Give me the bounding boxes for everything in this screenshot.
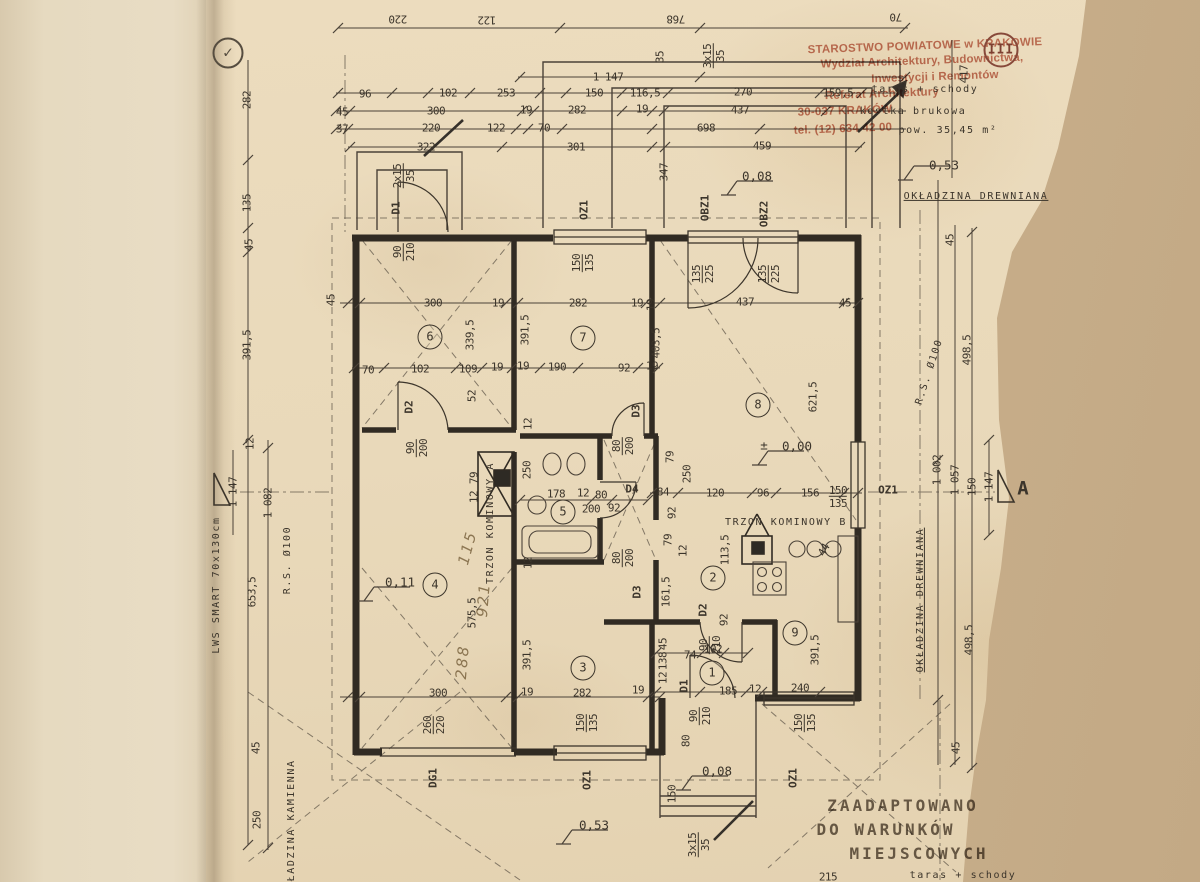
level-mark: 0,08: [702, 766, 732, 779]
dimension-label: 19: [636, 103, 648, 114]
opening-label: OBZ2: [758, 201, 769, 228]
dimension-label: 150135: [571, 254, 595, 272]
opening-label: D3: [631, 585, 642, 598]
dimension-label: 768: [667, 13, 685, 24]
dimension-label: 135225: [757, 265, 781, 283]
dimension-label: 79: [664, 451, 675, 463]
room-number: 8: [746, 393, 771, 418]
dimension-label: 150135: [829, 485, 847, 509]
dimension-label: 109: [459, 363, 477, 374]
dimension-label: 113,5: [719, 535, 730, 566]
dimension-label: 1 147: [593, 71, 624, 82]
dimension-label: 79: [662, 534, 673, 546]
dimension-label: 347: [658, 163, 669, 181]
opening-label: OZ1: [578, 200, 589, 220]
dimension-label: 200: [582, 503, 600, 514]
dimension-label: 116,5: [630, 87, 661, 98]
dimension-label: 391,5: [521, 640, 532, 671]
room-number: 5: [551, 500, 576, 525]
dimension-label: 150135: [575, 714, 599, 732]
dimension-label: 403,5: [650, 328, 661, 359]
opening-label: D1: [678, 679, 689, 692]
room-number: 3: [571, 656, 596, 681]
dimension-label: 52: [466, 390, 477, 402]
dimension-label: 417: [958, 65, 969, 83]
dimension-label: 250: [681, 465, 692, 483]
dimension-label: 19: [645, 299, 656, 311]
room-number: 1: [700, 661, 725, 686]
dimension-label: 120: [706, 487, 724, 498]
dimension-label: 282: [241, 91, 252, 109]
annotation-layer: STAROSTWO POWIATOWE w KRAKOWIEWydział Ar…: [0, 0, 1200, 882]
dimension-label: 1 082: [262, 488, 273, 519]
dimension-label: 92: [618, 362, 630, 373]
dimension-label: 79: [468, 472, 479, 484]
note-text: R.S. Ø100: [283, 526, 293, 595]
dimension-label: 12: [522, 557, 533, 569]
dimension-label: 45: [944, 234, 955, 246]
dimension-label: 12: [244, 438, 255, 450]
handwritten-note: 921: [475, 582, 493, 618]
photographed-floor-plan: STAROSTWO POWIATOWE w KRAKOWIEWydział Ar…: [0, 0, 1200, 882]
dimension-label: 391,5: [809, 635, 820, 666]
handwritten-note: 288: [454, 644, 472, 680]
dimension-label: 19: [520, 104, 532, 115]
level-mark: 0,53: [579, 820, 609, 833]
dimension-label: 96: [359, 88, 371, 99]
dimension-label: 12: [468, 491, 479, 503]
level-mark: 0,53: [929, 160, 959, 173]
dimension-label: 45: [336, 106, 348, 117]
dimension-label: 92: [666, 507, 677, 519]
dimension-label: 19: [646, 360, 658, 371]
note-text: taras + schody: [910, 871, 1017, 881]
dimension-label: 621,5: [807, 382, 818, 413]
dimension-label: 74: [684, 649, 696, 660]
dimension-label: 150135: [793, 714, 817, 732]
note-text: kostka brukowa: [860, 107, 967, 117]
dimension-label: 391,5: [519, 315, 530, 346]
opening-label: D1: [390, 201, 401, 214]
dimension-label: 19: [517, 360, 529, 371]
dimension-label: 19: [631, 297, 643, 308]
dimension-label: 92: [608, 502, 620, 513]
opening-label: D4: [625, 483, 638, 494]
dimension-label: 102: [704, 643, 722, 654]
checkmark-icon: ✓: [213, 38, 244, 69]
dimension-label: 437: [731, 104, 749, 115]
dimension-label: 498,5: [963, 625, 974, 656]
room-number: 6: [418, 325, 443, 350]
dimension-label: 80: [595, 489, 607, 500]
adaptation-stamp-line: DO WARUNKÓW: [817, 822, 956, 838]
level-mark: ±: [760, 440, 768, 453]
dimension-label: 138: [657, 652, 668, 670]
note-text: OKŁADZINA DREWNIANA: [904, 192, 1049, 202]
dimension-label: 3x1535: [702, 44, 726, 69]
dimension-label: 84: [657, 486, 669, 497]
dimension-label: 300: [424, 297, 442, 308]
dimension-label: 220: [422, 122, 440, 133]
dimension-label: 12: [657, 672, 668, 684]
opening-label: D2: [403, 400, 414, 413]
dimension-label: 220: [389, 13, 407, 24]
dimension-label: 322: [417, 141, 435, 152]
dimension-label: 70: [362, 364, 374, 375]
room-number: 4: [423, 573, 448, 598]
dimension-label: 45: [325, 294, 336, 306]
page-seal-icon: III: [984, 33, 1019, 68]
adaptation-stamp-line: ZAADAPTOWANO: [827, 798, 979, 814]
dimension-label: 437: [736, 296, 754, 307]
dimension-label: 391,5: [241, 330, 252, 361]
dimension-label: 45: [243, 239, 254, 251]
dimension-label: 156: [801, 487, 819, 498]
dimension-label: 19: [521, 686, 533, 697]
dimension-label: 1 147: [227, 477, 238, 508]
dimension-label: 12: [677, 545, 688, 557]
dimension-label: 37: [336, 123, 348, 134]
dimension-label: 282: [573, 687, 591, 698]
dimension-label: 80: [680, 735, 691, 747]
dimension-label: 282: [568, 104, 586, 115]
dimension-label: 159,5: [823, 87, 854, 98]
dimension-label: 80200: [611, 437, 635, 455]
dimension-label: 80200: [611, 549, 635, 567]
dimension-label: 12: [749, 683, 761, 694]
dimension-label: 150: [966, 478, 977, 496]
room-number: 9: [783, 621, 808, 646]
level-mark: 0,11: [385, 577, 415, 590]
dimension-label: 1 147: [983, 472, 994, 503]
dimension-label: 19: [491, 361, 503, 372]
dimension-label: 339,5: [464, 320, 475, 351]
dimension-label: 45: [657, 638, 668, 650]
dimension-label: 12: [522, 418, 533, 430]
note-text: pow. 35,45 m²: [898, 126, 997, 136]
opening-label: OZ1: [787, 768, 798, 788]
note-text: TRZON KOMINOWY B: [725, 518, 847, 528]
dimension-label: 215: [819, 871, 837, 882]
dimension-label: 19: [492, 297, 504, 308]
dimension-label: 122: [487, 122, 505, 133]
dimension-label: 150: [666, 785, 677, 803]
adaptation-stamp-line: MIEJSCOWYCH: [850, 846, 989, 862]
dimension-label: 301: [567, 141, 585, 152]
office-stamp-line: tel. (12) 634 42 00: [794, 122, 893, 137]
dimension-label: 498,5: [961, 335, 972, 366]
dimension-label: 250: [251, 811, 262, 829]
dimension-label: 698: [697, 122, 715, 133]
dimension-label: 150: [585, 87, 603, 98]
dimension-label: 240: [791, 682, 809, 693]
dimension-label: 161,5: [660, 577, 671, 608]
dimension-label: 12: [577, 487, 589, 498]
dimension-label: 90200: [405, 439, 429, 457]
dimension-label: 185: [719, 685, 737, 696]
note-text: LWS SMART 70x130cm: [212, 516, 222, 653]
note-text: taras + schody: [872, 85, 979, 95]
dimension-label: 190: [548, 361, 566, 372]
dimension-label: 92: [718, 614, 729, 626]
dimension-label: 122: [478, 14, 496, 25]
opening-label: A: [1017, 479, 1028, 498]
note-text: OKŁADZINA DREWNIANA: [916, 528, 926, 673]
opening-label: D3: [630, 404, 641, 417]
dimension-label: 135: [241, 194, 252, 212]
dimension-label: 45: [250, 742, 261, 754]
dimension-label: 1 002: [931, 455, 942, 486]
dimension-label: 300: [429, 687, 447, 698]
dimension-label: 282: [569, 297, 587, 308]
dimension-label: 2x1535: [392, 164, 416, 189]
dimension-label: 102: [411, 363, 429, 374]
dimension-label: 19: [632, 684, 644, 695]
dimension-label: 653,5: [246, 577, 257, 608]
opening-label: OBZ1: [699, 195, 710, 222]
dimension-label: 260220: [422, 716, 446, 734]
dimension-label: 96: [757, 487, 769, 498]
opening-label: DG1: [427, 768, 438, 788]
dimension-label: 3x1535: [687, 833, 711, 858]
opening-label: D2: [697, 603, 708, 616]
room-number: 7: [571, 326, 596, 351]
dimension-label: 45: [950, 742, 961, 754]
dimension-label: 300: [427, 105, 445, 116]
dimension-label: 90210: [392, 243, 416, 261]
dimension-label: 1 057: [949, 465, 960, 496]
dimension-label: 35: [654, 51, 665, 63]
opening-label: OZ1: [878, 484, 898, 495]
dimension-label: 250: [521, 461, 532, 479]
dimension-label: 135225: [691, 265, 715, 283]
handwritten-note: 115: [456, 529, 480, 566]
note-text: TRZON KOMINOWY A: [486, 462, 496, 584]
room-number: 2: [701, 566, 726, 591]
dimension-label: 45: [839, 297, 851, 308]
dimension-label: 102: [439, 87, 457, 98]
note-text: OKŁADZINA KAMIENNA: [287, 759, 297, 882]
opening-label: OZ1: [581, 770, 592, 790]
dimension-label: 44: [816, 542, 832, 558]
dimension-label: 270: [734, 86, 752, 97]
dimension-label: 178: [547, 488, 565, 499]
dimension-label: 90210: [688, 707, 712, 725]
note-text: R.S. Ø100: [915, 338, 946, 406]
dimension-label: 459: [753, 140, 771, 151]
dimension-label: 253: [497, 87, 515, 98]
level-mark: 0,00: [782, 441, 812, 454]
dimension-label: 70: [890, 11, 902, 22]
level-mark: 0,08: [742, 171, 772, 184]
dimension-label: 70: [538, 122, 550, 133]
